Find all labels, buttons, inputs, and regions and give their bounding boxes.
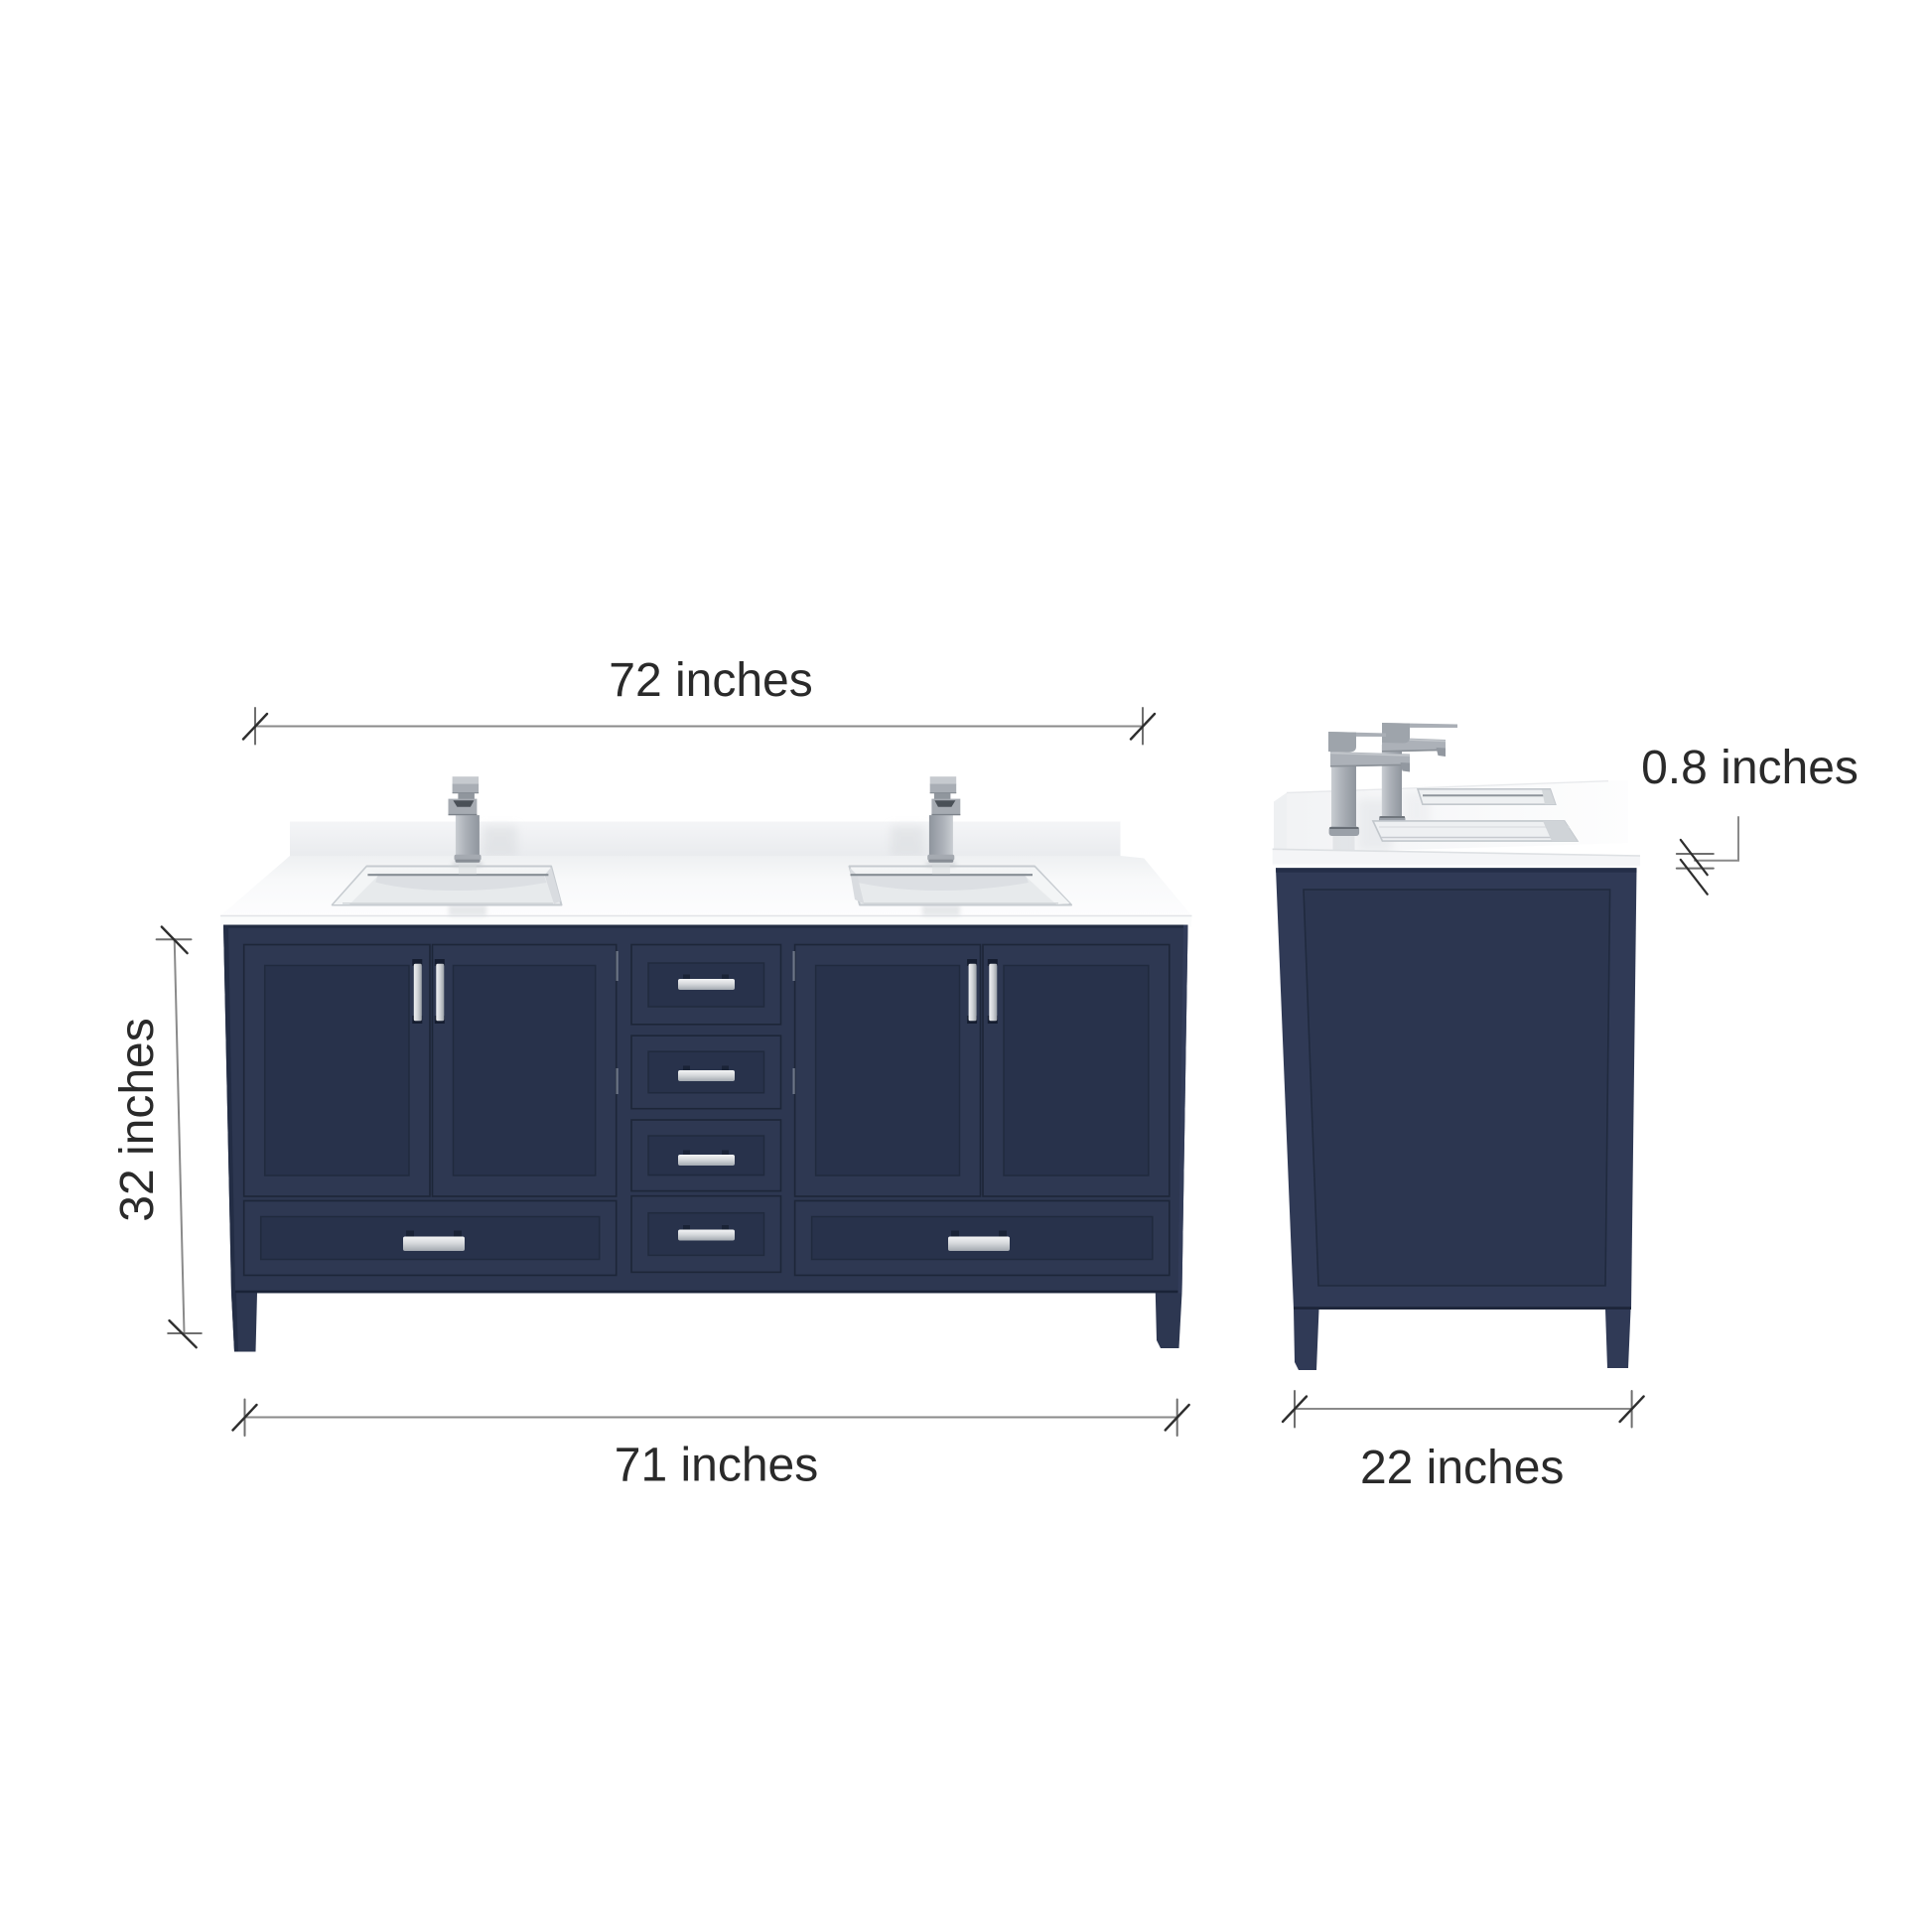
- svg-text:0.8 inches: 0.8 inches: [1641, 742, 1859, 794]
- svg-text:32 inches: 32 inches: [111, 1018, 164, 1221]
- svg-text:71 inches: 71 inches: [615, 1440, 818, 1492]
- svg-text:22 inches: 22 inches: [1360, 1442, 1564, 1494]
- svg-text:72 inches: 72 inches: [609, 654, 812, 707]
